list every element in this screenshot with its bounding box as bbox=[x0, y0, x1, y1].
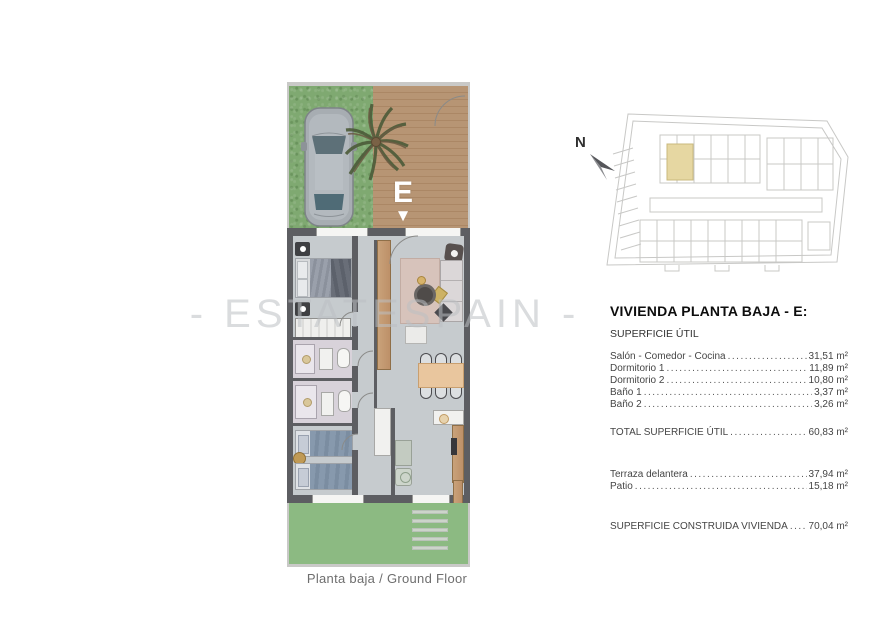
patio-right-wall bbox=[468, 503, 470, 566]
north-label: N bbox=[575, 134, 586, 151]
area-row: Patio15,18 m² bbox=[610, 481, 848, 493]
floor-plan: E ▼ bbox=[287, 82, 470, 568]
built-area-row: SUPERFICIE CONSTRUIDA VIVIENDA70,04 m² bbox=[610, 521, 848, 533]
area-row: Terraza delantera37,94 m² bbox=[610, 469, 848, 481]
total-area-row: TOTAL SUPERFICIE ÚTIL60,83 m² bbox=[610, 427, 848, 439]
patio-slab bbox=[412, 528, 448, 532]
patio-slab bbox=[412, 546, 448, 550]
outdoor-areas: Terraza delantera37,94 m² Patio15,18 m² bbox=[610, 469, 848, 493]
plan-caption: Planta baja / Ground Floor bbox=[287, 571, 487, 586]
bedroom2-window bbox=[312, 495, 364, 503]
area-row: Dormitorio 111,89 m² bbox=[610, 363, 848, 375]
counter-end bbox=[453, 480, 463, 504]
area-row: Salón - Comedor - Cocina31,51 m² bbox=[610, 351, 848, 363]
area-row: Dormitorio 210,80 m² bbox=[610, 375, 848, 387]
highlighted-unit bbox=[667, 144, 693, 180]
details-title: VIVIENDA PLANTA BAJA - E: bbox=[610, 303, 848, 319]
area-row: Baño 13,37 m² bbox=[610, 387, 848, 399]
patio-bottom-wall bbox=[287, 564, 470, 567]
section-label: SUPERFICIE ÚTIL bbox=[610, 328, 848, 340]
patio-slab bbox=[412, 519, 448, 523]
area-details: VIVIENDA PLANTA BAJA - E: SUPERFICIE ÚTI… bbox=[610, 303, 848, 533]
patio-left-wall bbox=[287, 503, 289, 566]
patio-door-opening bbox=[412, 495, 450, 503]
patio-slab bbox=[412, 510, 448, 514]
patio-slab bbox=[412, 537, 448, 541]
room-areas: Salón - Comedor - Cocina31,51 m² Dormito… bbox=[610, 351, 848, 411]
area-row: Baño 23,26 m² bbox=[610, 399, 848, 411]
site-plan bbox=[605, 102, 855, 282]
